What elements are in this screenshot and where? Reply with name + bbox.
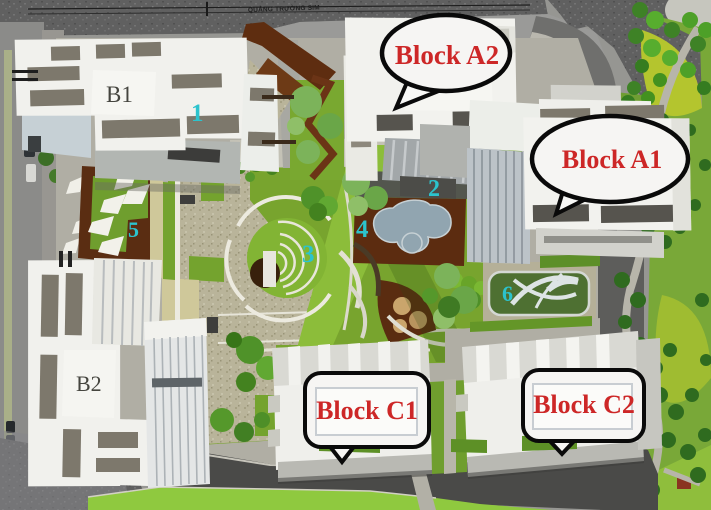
svg-text:B2: B2 bbox=[76, 371, 102, 396]
svg-text:Block C2: Block C2 bbox=[533, 390, 635, 419]
svg-text:4: 4 bbox=[356, 216, 369, 243]
svg-text:B1: B1 bbox=[106, 82, 133, 107]
svg-text:1: 1 bbox=[191, 100, 204, 127]
svg-text:2: 2 bbox=[428, 176, 440, 202]
svg-text:Block C1: Block C1 bbox=[316, 396, 418, 425]
svg-text:3: 3 bbox=[302, 241, 315, 268]
svg-text:Block A2: Block A2 bbox=[395, 40, 499, 70]
svg-text:5: 5 bbox=[128, 217, 139, 242]
svg-text:6: 6 bbox=[502, 281, 513, 306]
svg-text:Block A1: Block A1 bbox=[562, 145, 662, 174]
